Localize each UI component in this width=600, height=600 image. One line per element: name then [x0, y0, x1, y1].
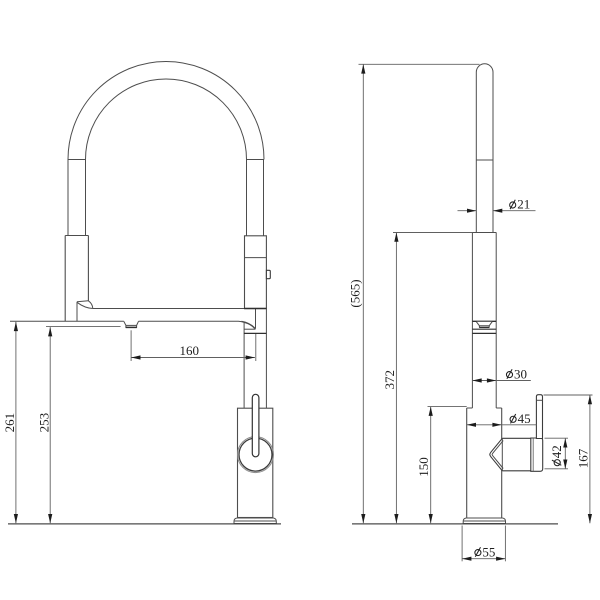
svg-text:167: 167 [576, 448, 591, 468]
svg-text:150: 150 [416, 457, 431, 477]
svg-text:45: 45 [518, 411, 531, 426]
svg-text:160: 160 [180, 343, 200, 358]
svg-text:(565): (565) [347, 279, 362, 307]
svg-text:21: 21 [517, 197, 530, 212]
svg-text:261: 261 [2, 413, 17, 433]
svg-text:30: 30 [514, 366, 527, 381]
svg-text:55: 55 [482, 544, 495, 559]
svg-text:253: 253 [36, 413, 51, 433]
svg-text:372: 372 [382, 370, 397, 390]
svg-text:42: 42 [549, 445, 564, 458]
